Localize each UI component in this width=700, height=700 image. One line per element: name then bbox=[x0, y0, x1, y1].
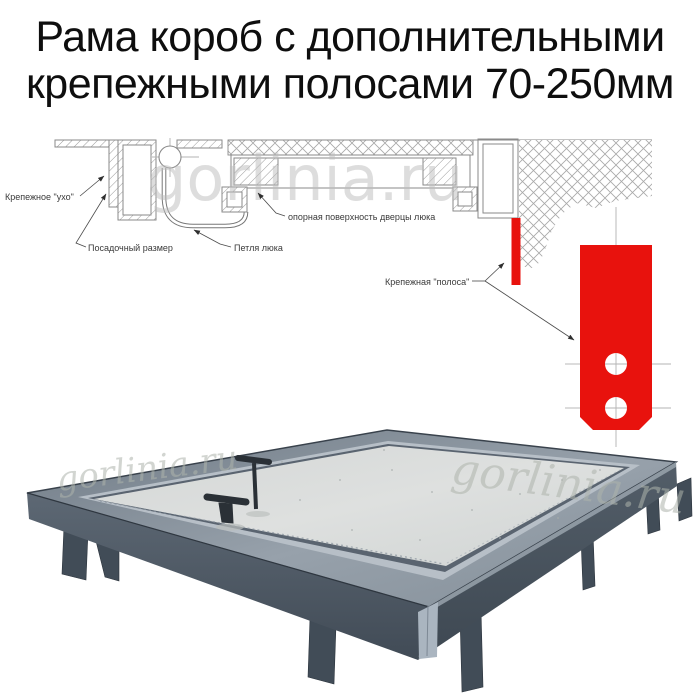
mounting-ear-section bbox=[109, 140, 118, 207]
scene-canvas: gorlinia.ru Крепежное "ухо" Посадочный р… bbox=[0, 0, 700, 700]
product-photo: gorlinia.ru gorlinia.ru bbox=[27, 430, 692, 692]
technical-diagram: gorlinia.ru Крепежное "ухо" Посадочный р… bbox=[5, 138, 671, 447]
ceiling-section-left bbox=[55, 140, 109, 147]
handle-shadow bbox=[246, 511, 270, 517]
fastening-strip-red bbox=[512, 218, 521, 285]
fastening-plate-red bbox=[580, 245, 652, 430]
frame-profile-right bbox=[478, 139, 518, 218]
label-fastening-strip: Крепежная "полоса" bbox=[385, 277, 469, 287]
handle-shadow bbox=[216, 524, 244, 531]
label-hinge: Петля люка bbox=[234, 243, 283, 253]
label-mounting-size: Посадочный размер bbox=[88, 243, 173, 253]
watermark-diagram: gorlinia.ru bbox=[147, 142, 463, 215]
label-mounting-ear: Крепежное "ухо" bbox=[5, 192, 74, 202]
label-support-surface: опорная поверхность дверцы люка bbox=[288, 212, 435, 222]
